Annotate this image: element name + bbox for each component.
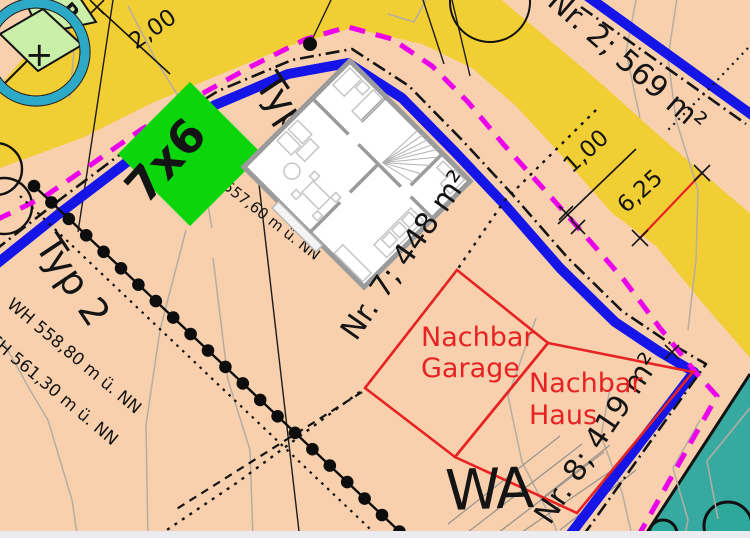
site-plan-map[interactable]: + P Typ 557,60 m ü. NN 7x6 xyxy=(0,0,750,538)
garage-label-2: Garage xyxy=(421,353,520,384)
window-edge xyxy=(0,531,750,538)
haus-label-2: Haus xyxy=(529,400,597,431)
plus-marker: + xyxy=(25,35,54,75)
haus-label-1: Nachbar xyxy=(529,368,643,399)
garage-label-1: Nachbar xyxy=(421,322,535,353)
survey-point xyxy=(303,37,317,51)
zone-label: WA xyxy=(444,456,535,524)
